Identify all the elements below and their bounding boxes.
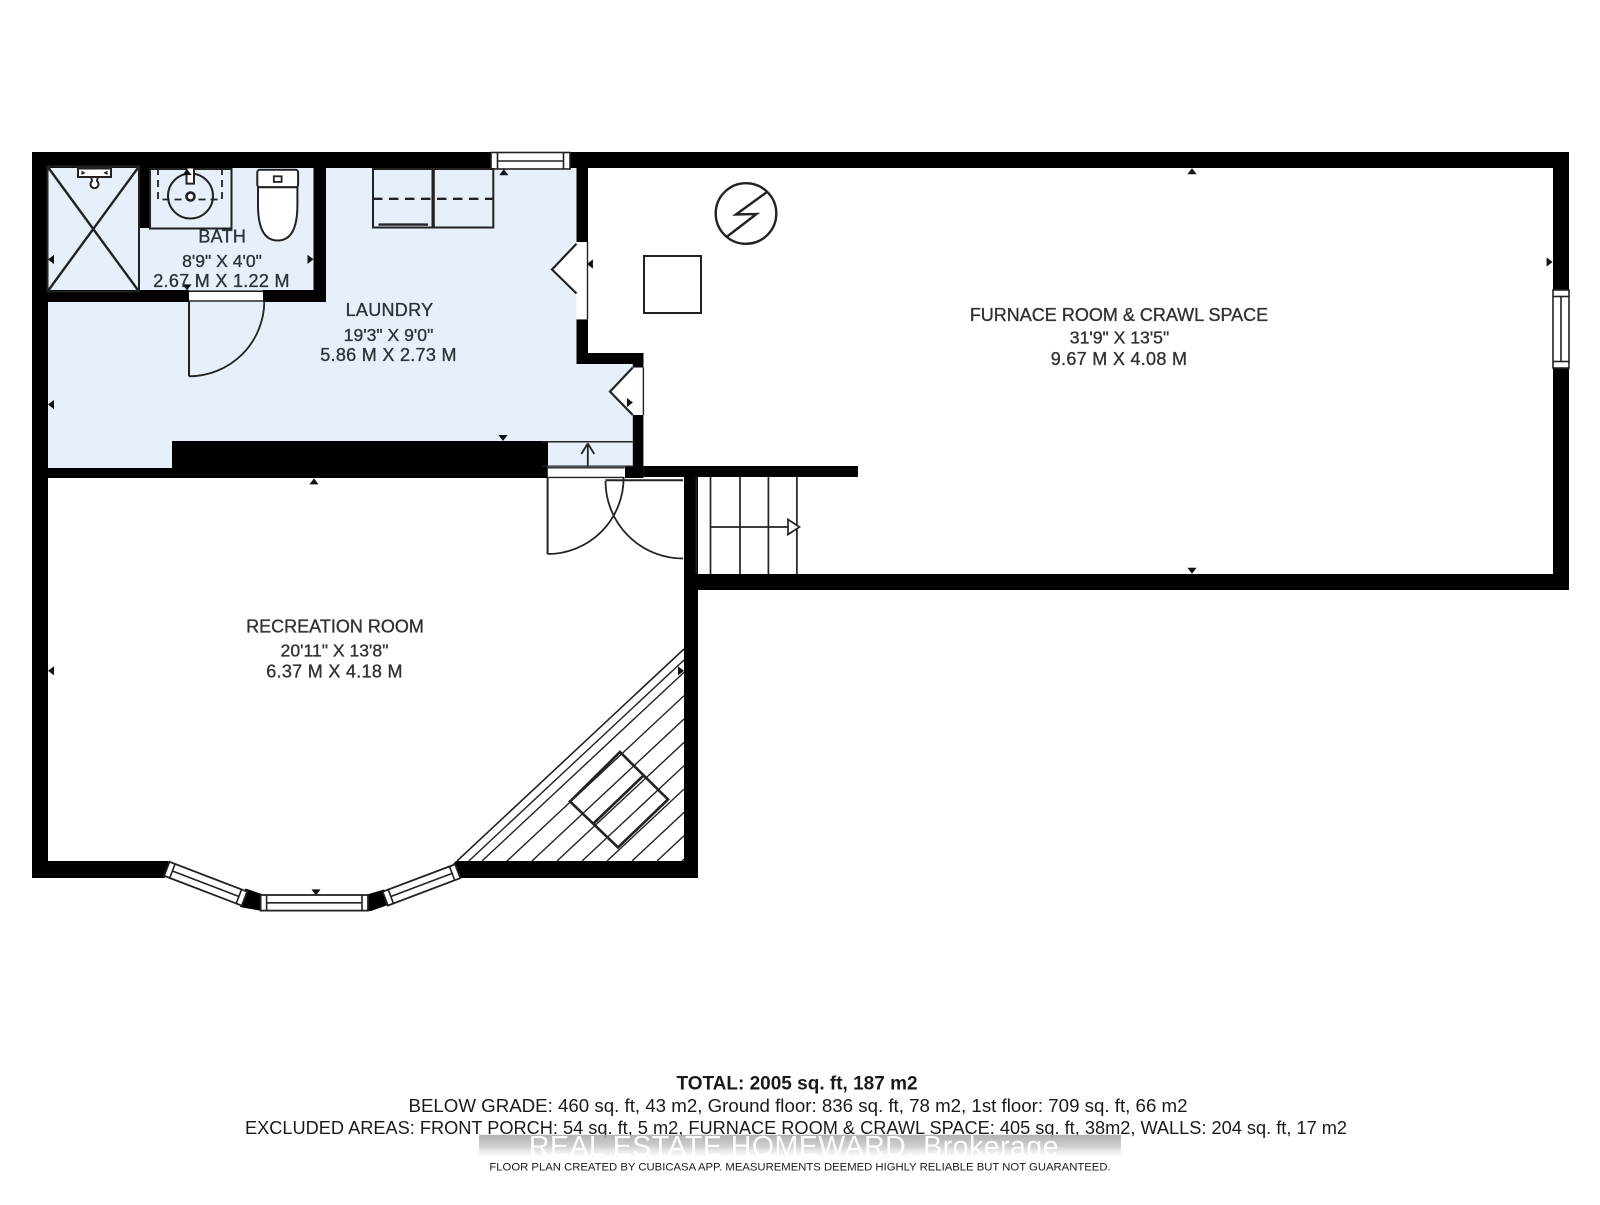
svg-text:31'9" X 13'5": 31'9" X 13'5" — [1070, 328, 1169, 348]
svg-text:FURNACE ROOM & CRAWL SPACE: FURNACE ROOM & CRAWL SPACE — [970, 305, 1268, 325]
svg-text:REAL ESTATE HOMEWARD, Brokerag: REAL ESTATE HOMEWARD, Brokerage — [529, 1131, 1059, 1163]
svg-text:FLOOR PLAN CREATED BY CUBICASA: FLOOR PLAN CREATED BY CUBICASA APP. MEAS… — [489, 1162, 1110, 1174]
svg-text:2.67 M X 1.22 M: 2.67 M X 1.22 M — [153, 271, 290, 291]
svg-text:8'9" X 4'0": 8'9" X 4'0" — [182, 251, 262, 271]
svg-text:5.86 M X 2.73 M: 5.86 M X 2.73 M — [320, 345, 457, 365]
svg-text:6.37 M X 4.18 M: 6.37 M X 4.18 M — [266, 662, 403, 682]
svg-text:RECREATION ROOM: RECREATION ROOM — [246, 617, 424, 637]
svg-text:BELOW GRADE: 460 sq. ft, 43 m2: BELOW GRADE: 460 sq. ft, 43 m2, Ground f… — [408, 1095, 1187, 1116]
svg-text:19'3" X 9'0": 19'3" X 9'0" — [344, 325, 434, 345]
svg-text:TOTAL: 2005 sq. ft, 187 m2: TOTAL: 2005 sq. ft, 187 m2 — [676, 1074, 917, 1095]
svg-text:9.67 M X 4.08 M: 9.67 M X 4.08 M — [1051, 349, 1188, 369]
svg-text:20'11" X 13'8": 20'11" X 13'8" — [281, 641, 389, 661]
svg-text:LAUNDRY: LAUNDRY — [346, 300, 434, 320]
svg-text:BATH: BATH — [198, 227, 246, 247]
